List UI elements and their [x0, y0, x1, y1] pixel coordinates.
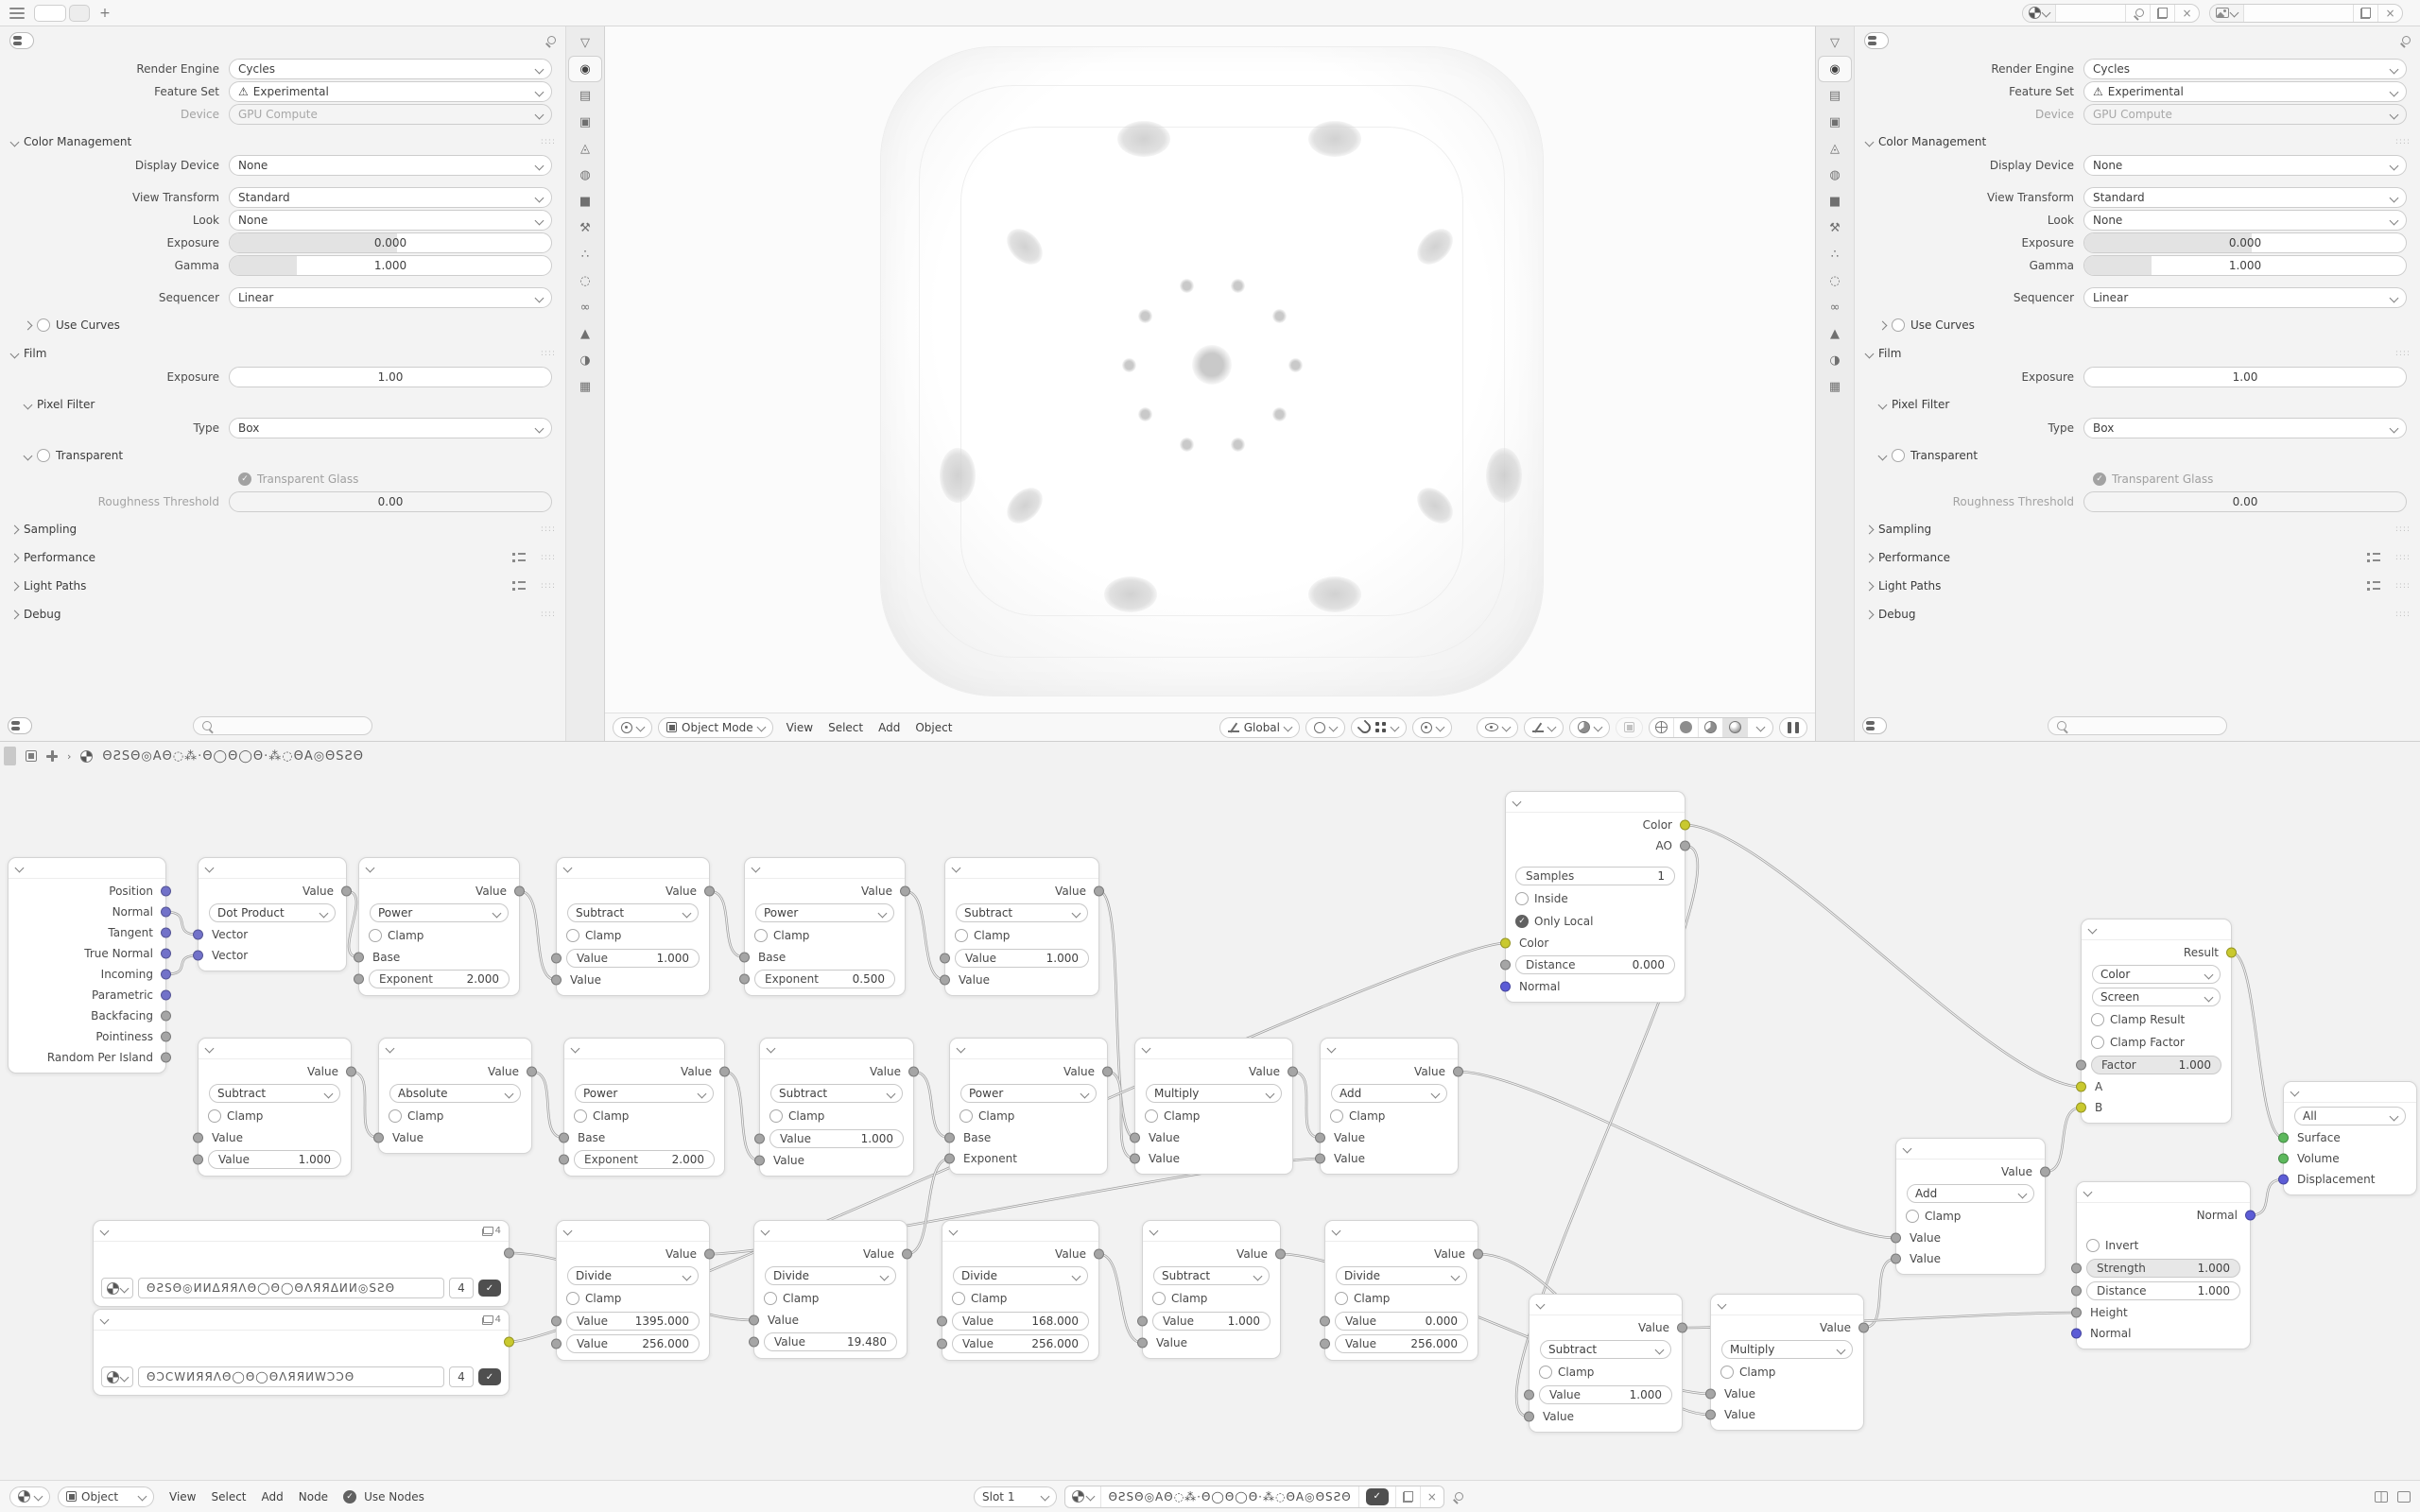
value-field-exposure[interactable]: 1.00: [229, 367, 552, 387]
node-header[interactable]: [199, 1039, 351, 1059]
node-value-field[interactable]: Distance1.000: [2086, 1281, 2240, 1300]
socket[interactable]: [551, 954, 562, 964]
node-header[interactable]: 4: [94, 1221, 509, 1242]
section-header-light-paths[interactable]: Light Paths::::: [1855, 575, 2420, 597]
socket[interactable]: [1275, 1249, 1286, 1260]
checkbox[interactable]: ✓: [2093, 472, 2106, 486]
node-operation-dropdown[interactable]: Divide: [953, 1266, 1088, 1285]
dropdown-render-engine[interactable]: Cycles: [2083, 59, 2407, 79]
socket[interactable]: [739, 974, 750, 985]
node-value-field[interactable]: Value168.000: [952, 1312, 1089, 1331]
value-field-roughness-threshold[interactable]: 0.00: [2083, 491, 2407, 512]
node-value-field[interactable]: Distance0.000: [1515, 955, 1675, 974]
node-checkbox-clamp[interactable]: Clamp: [1330, 1109, 1385, 1123]
socket[interactable]: [1094, 886, 1104, 897]
node-d1[interactable]: ValueDivideClampValue1395.000Value256.00…: [556, 1220, 710, 1361]
socket[interactable]: [704, 886, 715, 897]
socket[interactable]: [193, 1155, 203, 1165]
section-header-debug[interactable]: Debug::::: [1855, 603, 2420, 626]
tab-output[interactable]: ▤: [1819, 83, 1851, 108]
workspace-tab-1[interactable]: [34, 5, 66, 22]
socket[interactable]: [739, 953, 750, 963]
socket[interactable]: [193, 951, 203, 961]
socket[interactable]: [940, 954, 950, 964]
node-header[interactable]: [942, 1221, 1098, 1242]
node-s2[interactable]: ValueMultiplyClampValueValue: [1710, 1294, 1864, 1431]
node-matout[interactable]: AllSurfaceVolumeDisplacement: [2283, 1081, 2417, 1195]
copy-icon[interactable]: [2150, 5, 2174, 22]
socket[interactable]: [944, 1133, 955, 1143]
node-m4[interactable]: ValueSubtractClampValue1.000Value: [759, 1038, 914, 1177]
socket[interactable]: [161, 886, 171, 897]
node-header[interactable]: [745, 858, 905, 879]
node-operation-dropdown[interactable]: Multiply: [1721, 1340, 1853, 1359]
node-checkbox-inside[interactable]: Inside: [1515, 892, 1568, 905]
socket[interactable]: [354, 953, 364, 963]
user-count[interactable]: 4: [449, 1366, 474, 1387]
socket[interactable]: [1500, 938, 1511, 949]
shading-rendered-button[interactable]: [1723, 717, 1748, 738]
socket[interactable]: [900, 886, 910, 897]
subpanel-use-curves[interactable]: Use Curves: [0, 314, 565, 336]
image-name-field[interactable]: ΘƧЅΘ◎ͶͶΔЯЯΛΘ◯Θ◯ΘΛЯЯΔͶͶ◎ЅƧΘ: [138, 1278, 444, 1298]
collapse-chevron-icon[interactable]: [767, 1044, 776, 1054]
node-editor-menu-node[interactable]: Node: [291, 1490, 336, 1503]
node-header[interactable]: 4: [94, 1310, 509, 1331]
node-checkbox-clamp[interactable]: Clamp: [754, 929, 809, 942]
tab-object-data[interactable]: ▲: [1819, 321, 1851, 346]
node-checkbox-clamp[interactable]: Clamp: [1539, 1366, 1594, 1379]
node-value-field[interactable]: Strength1.000: [2086, 1259, 2240, 1278]
node-value-field[interactable]: Value1.000: [955, 949, 1089, 968]
value-field-exposure[interactable]: 1.00: [2083, 367, 2407, 387]
shading-material-button[interactable]: [1699, 717, 1723, 738]
node-header[interactable]: [1321, 1039, 1458, 1059]
dropdown-display-device[interactable]: None: [2083, 155, 2407, 176]
node-operation-dropdown[interactable]: Power: [960, 1084, 1097, 1103]
node-addr[interactable]: ValueAddClampValueValue: [1895, 1138, 2046, 1275]
node-value-field[interactable]: Samples1: [1515, 867, 1675, 885]
node-checkbox-clamp[interactable]: Clamp: [369, 929, 423, 942]
pause-render-button[interactable]: [1779, 717, 1807, 738]
socket[interactable]: [193, 1133, 203, 1143]
shader-type-dropdown[interactable]: Object: [58, 1486, 154, 1507]
dropdown-view-transform[interactable]: Standard: [2083, 187, 2407, 208]
socket[interactable]: [2278, 1133, 2289, 1143]
section-header-performance[interactable]: Performance::::: [1855, 546, 2420, 569]
node-checkbox-clamp[interactable]: Clamp: [1720, 1366, 1775, 1379]
socket[interactable]: [2071, 1308, 2082, 1318]
node-value-field[interactable]: Value1.000: [208, 1150, 341, 1169]
material-id-input[interactable]: [2056, 5, 2125, 22]
checkbox[interactable]: ✓: [238, 472, 251, 486]
socket[interactable]: [346, 1067, 356, 1077]
collapse-chevron-icon[interactable]: [563, 864, 573, 873]
section-header-color-management[interactable]: Color Management::::: [0, 130, 565, 153]
dropdown-view-transform[interactable]: Standard: [229, 187, 552, 208]
node-checkbox-only-local[interactable]: ✓Only Local: [1515, 915, 1593, 928]
dropdown-device[interactable]: GPU Compute: [2083, 104, 2407, 125]
node-m1[interactable]: ValueSubtractClampValueValue1.000: [198, 1038, 352, 1177]
node-s1[interactable]: ValueSubtractClampValue1.000Value: [1529, 1294, 1683, 1433]
toggle-checkbox[interactable]: [1892, 318, 1905, 332]
fake-user-shield-button[interactable]: ✓: [1359, 1486, 1396, 1507]
node-pow1[interactable]: ValuePowerClampBaseExponent2.000: [358, 857, 520, 996]
copy-icon[interactable]: [2353, 5, 2377, 22]
socket[interactable]: [1473, 1249, 1483, 1260]
socket[interactable]: [161, 1053, 171, 1063]
collapse-chevron-icon[interactable]: [2083, 1188, 2093, 1197]
node-d3[interactable]: ValueDivideClampValue168.000Value256.000: [942, 1220, 1099, 1361]
socket[interactable]: [1453, 1067, 1463, 1077]
node-value-field[interactable]: Value256.000: [566, 1334, 700, 1353]
socket[interactable]: [1315, 1133, 1325, 1143]
filter-toggle-icon[interactable]: [1862, 717, 1887, 734]
node-sub2[interactable]: ValueSubtractClampValue1.000Value: [944, 857, 1099, 996]
node-checkbox-clamp[interactable]: Clamp: [566, 1292, 621, 1305]
node-m7[interactable]: ValueAddClampValueValue: [1320, 1038, 1459, 1175]
socket[interactable]: [940, 975, 950, 986]
overlays-dropdown[interactable]: [1569, 717, 1610, 738]
socket[interactable]: [1130, 1154, 1140, 1164]
filter-toggle-icon[interactable]: [8, 717, 32, 734]
socket[interactable]: [902, 1249, 912, 1260]
node-operation-dropdown[interactable]: Divide: [765, 1266, 896, 1285]
node-m2[interactable]: ValueAbsoluteClampValue: [378, 1038, 532, 1154]
dropdown-type[interactable]: Box: [229, 418, 552, 438]
node-header[interactable]: [557, 1221, 709, 1242]
viewport-menu-select[interactable]: Select: [821, 721, 871, 734]
tab-filter-funnel[interactable]: ▽: [569, 30, 601, 55]
image-id-browser[interactable]: ×: [2209, 4, 2403, 23]
pin-icon[interactable]: [544, 35, 556, 46]
proportional-edit-dropdown[interactable]: [1412, 717, 1452, 738]
socket[interactable]: [1094, 1249, 1104, 1260]
node-header[interactable]: [199, 858, 346, 879]
node-header[interactable]: [379, 1039, 531, 1059]
collapse-chevron-icon[interactable]: [1512, 798, 1522, 807]
value-field-gamma[interactable]: 1.000: [2083, 255, 2407, 276]
node-value-field[interactable]: Value1.000: [769, 1129, 904, 1148]
node-header[interactable]: [1711, 1295, 1863, 1315]
subpanel-transparent[interactable]: Transparent: [0, 444, 565, 467]
dropdown-device[interactable]: GPU Compute: [229, 104, 552, 125]
socket[interactable]: [1524, 1412, 1534, 1422]
fake-user-shield-button[interactable]: ✓: [478, 1280, 501, 1297]
node-pow2[interactable]: ValuePowerClampBaseExponent0.500: [744, 857, 906, 996]
shading-solid-button[interactable]: [1674, 717, 1699, 738]
node-operation-dropdown[interactable]: Dot Product: [209, 903, 336, 922]
properties-editor-icon[interactable]: [1864, 32, 1889, 49]
node-d4[interactable]: ValueSubtractClampValue1.000Value: [1142, 1220, 1281, 1359]
collapse-chevron-icon[interactable]: [1903, 1144, 1912, 1154]
socket[interactable]: [161, 907, 171, 918]
node-d5[interactable]: ValueDivideClampValue0.000Value256.000: [1324, 1220, 1478, 1361]
socket[interactable]: [551, 1339, 562, 1349]
node-bump[interactable]: NormalInvertStrength1.000Distance1.000He…: [2076, 1181, 2251, 1349]
socket[interactable]: [193, 930, 203, 940]
image-browse-icon[interactable]: [2210, 5, 2244, 22]
node-header[interactable]: [1143, 1221, 1280, 1242]
node-operation-dropdown[interactable]: Subtract: [209, 1084, 340, 1103]
node-checkbox-clamp[interactable]: Clamp: [1152, 1292, 1207, 1305]
collapse-chevron-icon[interactable]: [571, 1044, 580, 1054]
add-workspace-button[interactable]: +: [97, 6, 112, 21]
node-header[interactable]: [2082, 919, 2231, 940]
socket[interactable]: [908, 1067, 919, 1077]
subpanel-use-curves[interactable]: Use Curves: [1855, 314, 2420, 336]
socket[interactable]: [2278, 1175, 2289, 1185]
collapse-chevron-icon[interactable]: [1332, 1227, 1341, 1236]
tab-view-layer[interactable]: ▣: [1819, 110, 1851, 134]
node-value-field[interactable]: Factor1.000: [2091, 1056, 2221, 1074]
material-id-browser[interactable]: ×: [2022, 4, 2200, 23]
section-header-pixel-filter[interactable]: Pixel Filter: [1855, 393, 2420, 416]
node-operation-dropdown[interactable]: All: [2294, 1107, 2406, 1125]
shading-dropdown[interactable]: [1748, 717, 1772, 738]
section-header-color-management[interactable]: Color Management::::: [1855, 130, 2420, 153]
viewport-canvas[interactable]: [605, 26, 1815, 713]
socket[interactable]: [1137, 1316, 1148, 1327]
socket[interactable]: [1705, 1389, 1716, 1400]
tab-world[interactable]: ◍: [569, 163, 601, 187]
node-operation-dropdown[interactable]: Power: [575, 1084, 714, 1103]
node-header[interactable]: [760, 1039, 913, 1059]
toggle-checkbox[interactable]: [37, 449, 50, 462]
node-header[interactable]: [1530, 1295, 1682, 1315]
editor-split-icon[interactable]: [2375, 1491, 2388, 1503]
node-checkbox-clamp[interactable]: Clamp: [1145, 1109, 1200, 1123]
socket[interactable]: [1315, 1154, 1325, 1164]
node-operation-dropdown[interactable]: Divide: [567, 1266, 699, 1285]
editor-window-icon[interactable]: [2397, 1491, 2411, 1503]
tab-texture[interactable]: ▦: [569, 374, 601, 399]
section-header-pixel-filter[interactable]: Pixel Filter: [0, 393, 565, 416]
socket[interactable]: [527, 1067, 537, 1077]
node-dot[interactable]: ValueDot ProductVectorVector: [198, 857, 347, 971]
socket[interactable]: [2278, 1154, 2289, 1164]
tab-modifiers[interactable]: ⚒: [1819, 215, 1851, 240]
node-operation-dropdown[interactable]: Add: [1331, 1084, 1447, 1103]
value-field-exposure[interactable]: 0.000: [229, 232, 552, 253]
tab-view-layer[interactable]: ▣: [569, 110, 601, 134]
dropdown-sequencer[interactable]: Linear: [2083, 287, 2407, 308]
collapse-chevron-icon[interactable]: [957, 1044, 966, 1054]
node-d2[interactable]: ValueDivideClampValueValue19.480: [753, 1220, 907, 1359]
socket[interactable]: [754, 1156, 765, 1166]
node-t1[interactable]: 4ΘƧЅΘ◎ͶͶΔЯЯΛΘ◯Θ◯ΘΛЯЯΔͶͶ◎ЅƧΘ4✓: [93, 1220, 510, 1307]
socket[interactable]: [161, 949, 171, 959]
tab-world[interactable]: ◍: [1819, 163, 1851, 187]
socket[interactable]: [704, 1249, 715, 1260]
node-operation-dropdown[interactable]: Subtract: [567, 903, 699, 922]
collapse-chevron-icon[interactable]: [1142, 1044, 1151, 1054]
socket[interactable]: [1680, 841, 1690, 851]
socket[interactable]: [161, 1032, 171, 1042]
snap-dropdown[interactable]: [1305, 717, 1345, 738]
tab-output[interactable]: ▤: [569, 83, 601, 108]
node-checkbox-clamp[interactable]: Clamp: [955, 929, 1010, 942]
node-operation-dropdown[interactable]: Add: [1907, 1184, 2034, 1203]
socket[interactable]: [1102, 1067, 1113, 1077]
collapse-chevron-icon[interactable]: [1149, 1227, 1159, 1236]
dropdown-feature-set[interactable]: ⚠Experimental: [229, 81, 552, 102]
socket[interactable]: [754, 1134, 765, 1144]
snap-toggle[interactable]: [1351, 717, 1407, 738]
node-m3[interactable]: ValuePowerClampBaseExponent2.000: [563, 1038, 725, 1177]
section-header-film[interactable]: Film::::: [0, 342, 565, 365]
tab-render[interactable]: ◉: [569, 57, 601, 81]
section-header-debug[interactable]: Debug::::: [0, 603, 565, 626]
section-header-light-paths[interactable]: Light Paths::::: [0, 575, 565, 597]
viewport-menu-add[interactable]: Add: [871, 721, 907, 734]
node-operation-dropdown[interactable]: Absolute: [389, 1084, 521, 1103]
node-m6[interactable]: ValueMultiplyClampValueValue: [1134, 1038, 1293, 1175]
node-header[interactable]: [9, 858, 165, 879]
node-m5[interactable]: ValuePowerClampBaseExponent: [949, 1038, 1108, 1175]
node-header[interactable]: [1325, 1221, 1478, 1242]
tab-constraints[interactable]: ∞: [1819, 295, 1851, 319]
node-value-field[interactable]: Exponent2.000: [574, 1150, 715, 1169]
node-checkbox-clamp[interactable]: Clamp: [1335, 1292, 1390, 1305]
dropdown-sequencer[interactable]: Linear: [229, 287, 552, 308]
node-canvas[interactable]: PositionNormalTangentTrue NormalIncoming…: [0, 770, 2420, 1481]
socket[interactable]: [719, 1067, 730, 1077]
socket[interactable]: [937, 1339, 947, 1349]
node-header[interactable]: [945, 858, 1098, 879]
user-count[interactable]: 4: [449, 1278, 474, 1298]
node-value-field[interactable]: Exponent0.500: [754, 970, 895, 988]
dropdown-display-device[interactable]: None: [229, 155, 552, 176]
node-checkbox-clamp[interactable]: Clamp: [1906, 1210, 1961, 1223]
socket[interactable]: [514, 886, 525, 897]
tab-scene[interactable]: ◬: [569, 136, 601, 161]
properties-search-input[interactable]: [2048, 716, 2227, 735]
node-operation-dropdown[interactable]: Color: [2092, 965, 2221, 984]
node-header[interactable]: [1135, 1039, 1292, 1059]
tab-physics[interactable]: ◌: [569, 268, 601, 293]
collapse-chevron-icon[interactable]: [366, 864, 375, 873]
value-field-roughness-threshold[interactable]: 0.00: [229, 491, 552, 512]
node-mix[interactable]: ResultColorScreenClamp ResultClamp Facto…: [2081, 919, 2232, 1124]
socket[interactable]: [551, 975, 562, 986]
socket[interactable]: [161, 970, 171, 980]
node-header[interactable]: [2077, 1182, 2250, 1203]
node-sub1[interactable]: ValueSubtractClampValue1.000Value: [556, 857, 710, 996]
node-checkbox-clamp[interactable]: Clamp: [208, 1109, 263, 1123]
socket[interactable]: [2071, 1286, 2082, 1297]
pin-icon[interactable]: [2399, 35, 2411, 46]
socket[interactable]: [161, 928, 171, 938]
node-header[interactable]: [557, 858, 709, 879]
image-name-field[interactable]: ΘƆϹWͶЯЯΛΘ◯Θ◯ΘΛЯЯͶWϽƆΘ: [138, 1366, 444, 1387]
socket[interactable]: [944, 1154, 955, 1164]
node-operation-dropdown[interactable]: Screen: [2092, 988, 2221, 1006]
tab-object[interactable]: ■: [1819, 189, 1851, 214]
gizmo-dropdown[interactable]: [1524, 717, 1564, 738]
socket[interactable]: [1891, 1233, 1901, 1244]
section-header-sampling[interactable]: Sampling::::: [0, 518, 565, 541]
tab-scene[interactable]: ◬: [1819, 136, 1851, 161]
socket[interactable]: [354, 974, 364, 985]
workspace-tab-2[interactable]: [69, 5, 90, 22]
node-checkbox-clamp[interactable]: Clamp: [764, 1292, 819, 1305]
editor-type-dropdown[interactable]: [9, 1486, 50, 1507]
pin-icon[interactable]: [1452, 1491, 1463, 1503]
collapse-chevron-icon[interactable]: [2290, 1088, 2300, 1097]
collapse-chevron-icon[interactable]: [100, 1315, 110, 1325]
node-header[interactable]: [564, 1039, 724, 1059]
node-editor-menu-view[interactable]: View: [162, 1490, 203, 1503]
node-value-field[interactable]: Value19.480: [764, 1332, 897, 1351]
socket[interactable]: [2071, 1329, 2082, 1339]
node-header[interactable]: [2284, 1082, 2416, 1103]
socket[interactable]: [1705, 1410, 1716, 1420]
node-header[interactable]: [754, 1221, 907, 1242]
socket[interactable]: [1677, 1323, 1687, 1333]
socket[interactable]: [1680, 820, 1690, 831]
node-geo[interactable]: PositionNormalTangentTrue NormalIncoming…: [8, 857, 166, 1074]
node-operation-dropdown[interactable]: Divide: [1336, 1266, 1467, 1285]
node-value-field[interactable]: Value1.000: [1539, 1385, 1672, 1404]
socket[interactable]: [1891, 1254, 1901, 1264]
node-header[interactable]: [950, 1039, 1107, 1059]
socket[interactable]: [2245, 1211, 2256, 1221]
node-value-field[interactable]: Value1.000: [566, 949, 700, 968]
socket[interactable]: [1524, 1390, 1534, 1400]
tab-render[interactable]: ◉: [1819, 57, 1851, 81]
node-checkbox-clamp[interactable]: Clamp: [574, 1109, 629, 1123]
visibility-dropdown[interactable]: [1477, 717, 1518, 738]
node-checkbox-clamp[interactable]: Clamp: [769, 1109, 824, 1123]
tab-particles[interactable]: ∴: [1819, 242, 1851, 266]
dropdown-look[interactable]: None: [2083, 210, 2407, 231]
material-browse-icon[interactable]: [2023, 5, 2056, 22]
collapse-chevron-icon[interactable]: [752, 864, 761, 873]
unlink-material-button[interactable]: ×: [1421, 1486, 1443, 1507]
dropdown-look[interactable]: None: [229, 210, 552, 231]
socket[interactable]: [161, 1011, 171, 1022]
socket[interactable]: [2076, 1060, 2086, 1071]
socket[interactable]: [559, 1133, 569, 1143]
toggle-checkbox[interactable]: [1892, 449, 1905, 462]
image-id-input[interactable]: [2244, 5, 2353, 22]
collapse-chevron-icon[interactable]: [1718, 1300, 1727, 1310]
socket[interactable]: [1500, 960, 1511, 971]
node-value-field[interactable]: Value0.000: [1335, 1312, 1468, 1331]
section-header-performance[interactable]: Performance::::: [0, 546, 565, 569]
toolbar-stub[interactable]: [4, 747, 16, 765]
collapse-chevron-icon[interactable]: [1536, 1300, 1546, 1310]
collapse-chevron-icon[interactable]: [205, 1044, 215, 1054]
tab-texture[interactable]: ▦: [1819, 374, 1851, 399]
socket[interactable]: [1858, 1323, 1869, 1333]
dropdown-feature-set[interactable]: ⚠Experimental: [2083, 81, 2407, 102]
node-checkbox-clamp[interactable]: Clamp: [389, 1109, 443, 1123]
tab-material[interactable]: ◑: [569, 348, 601, 372]
dropdown-render-engine[interactable]: Cycles: [229, 59, 552, 79]
socket[interactable]: [749, 1337, 759, 1348]
socket[interactable]: [1500, 982, 1511, 992]
node-operation-dropdown[interactable]: Subtract: [1540, 1340, 1671, 1359]
collapse-chevron-icon[interactable]: [563, 1227, 573, 1236]
socket[interactable]: [937, 1316, 947, 1327]
node-editor-menu-select[interactable]: Select: [203, 1490, 253, 1503]
material-name-field[interactable]: ΘƧЅΘ◎ΑΘ◌⁂·Θ◯Θ◯Θ·⁂◌ΘΑ◎ΘЅƧΘ: [1101, 1486, 1358, 1507]
collapse-chevron-icon[interactable]: [952, 864, 961, 873]
tab-material[interactable]: ◑: [1819, 348, 1851, 372]
tab-filter-funnel[interactable]: ▽: [1819, 30, 1851, 55]
